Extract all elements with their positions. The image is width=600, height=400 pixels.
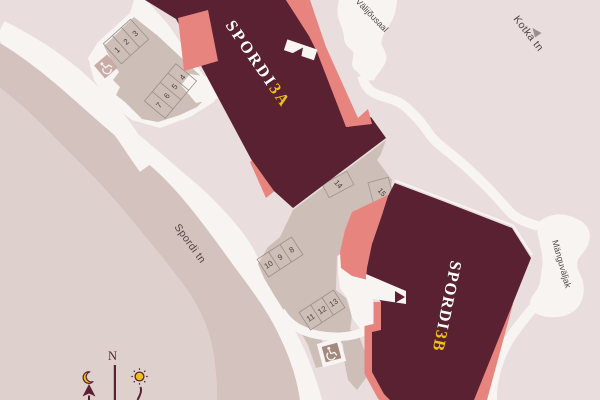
svg-text:N: N	[108, 349, 117, 363]
